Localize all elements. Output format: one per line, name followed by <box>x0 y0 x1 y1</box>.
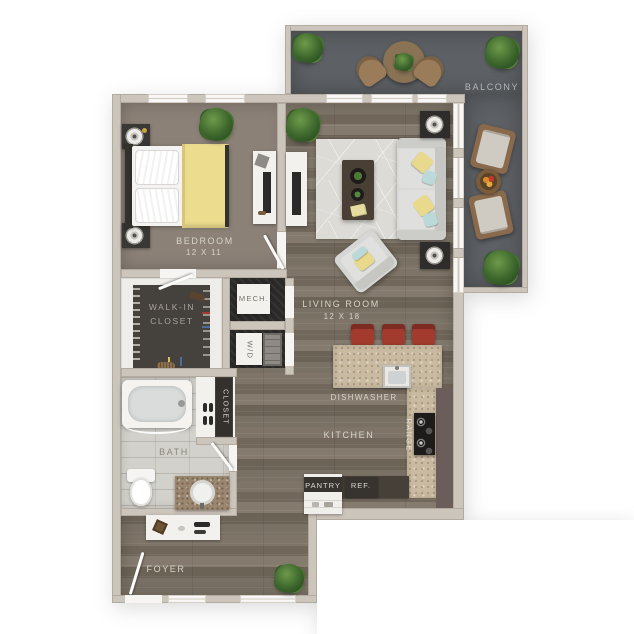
toilet-bowl <box>130 478 152 506</box>
bath-vanity <box>175 476 229 510</box>
living-room-tv <box>292 172 301 215</box>
balcony-wall-bottom <box>458 287 528 293</box>
living-room-plant <box>287 108 320 142</box>
bathtub-faucet-icon <box>178 400 185 407</box>
window-mullion-3 <box>453 248 464 258</box>
shoes-pair-1 <box>203 403 207 412</box>
hall-closet-label: CLOSET <box>222 389 229 425</box>
balcony-label: BALCONY <box>465 82 519 92</box>
sink-basin <box>388 371 406 384</box>
bar-stool-3 <box>412 324 435 345</box>
foyer-label: FOYER <box>146 564 185 574</box>
bedroom-tv <box>263 172 271 213</box>
table-planter-2 <box>351 188 364 201</box>
shower-curtain-arc <box>124 416 190 434</box>
wall-wic-right <box>222 278 230 375</box>
console-decor-dish <box>178 526 185 531</box>
console-decor-tray <box>152 519 168 535</box>
lounge-cushion <box>474 195 508 234</box>
sofa-arm-bottom <box>397 230 446 240</box>
console-decor-glasses-icon <box>194 522 210 527</box>
balcony-plant-top-left <box>293 33 323 63</box>
coffee-table <box>342 160 374 220</box>
sofa <box>397 138 446 240</box>
clothes-tick-blue2 <box>180 357 182 366</box>
nightstand-trinket <box>142 128 147 133</box>
table-planter-1 <box>350 168 366 184</box>
pantry-jar-1 <box>312 502 319 507</box>
refrigerator-label: REF. <box>351 481 371 490</box>
clothes-tick-blue <box>202 326 210 328</box>
wall-closet-bottom <box>196 437 237 445</box>
balcony-plant-bottom <box>484 250 519 285</box>
end-table-lamp-icon <box>425 115 444 134</box>
range-cooktop <box>414 413 435 455</box>
wd-door-opening <box>285 333 294 366</box>
pantry-cabinet: PANTRY <box>304 474 342 514</box>
bed-pillow-bottom <box>135 188 179 223</box>
living-room-window-1 <box>326 94 363 103</box>
wall-bedroom-bottom <box>121 269 287 278</box>
bed-pillow-top <box>135 150 179 185</box>
range-label: RANGE <box>405 418 414 451</box>
pantry-label: PANTRY <box>305 481 341 490</box>
bed <box>125 144 229 228</box>
window-mullion-2 <box>453 198 464 208</box>
walk-in-closet-label-line2: CLOSET <box>150 316 194 326</box>
foyer-window-2 <box>240 595 296 603</box>
wall-left <box>112 94 121 603</box>
bedroom-window-1 <box>148 94 188 103</box>
lounge-cushion <box>475 129 510 169</box>
nightstand-lamp-icon <box>125 226 144 245</box>
console-decor-keys-icon <box>194 530 206 534</box>
bed-foot-rail <box>225 145 229 227</box>
living-room-label: LIVING ROOM <box>302 299 380 309</box>
front-door-opening <box>125 595 162 603</box>
balcony-side-table <box>476 169 501 194</box>
balcony-plant-top-right <box>486 36 519 69</box>
window-mullion-1 <box>453 148 464 158</box>
wd-label: W/D <box>246 341 255 359</box>
apartment-floor-plan: BALCONY WALK-IN CLOSET MECH. W/D CLOSET <box>0 0 634 634</box>
balcony-wall-right <box>522 25 528 293</box>
living-room-console <box>286 152 307 226</box>
kitchen-sink <box>383 365 411 388</box>
kitchen-wall-cabinets <box>436 388 453 508</box>
exterior-mask <box>317 520 634 634</box>
hanging-clothes-right <box>203 290 210 360</box>
bed-blanket <box>182 144 229 228</box>
bedroom-dresser <box>253 151 276 224</box>
wall-mech-wd-divider <box>230 321 285 330</box>
living-room-dims: 12 X 18 <box>324 312 361 321</box>
balcony-wall-top <box>285 25 528 31</box>
fruit-bowl <box>480 173 497 190</box>
bedroom-plant <box>200 108 233 141</box>
dresser-decor-box <box>254 153 269 168</box>
foyer-window-1 <box>168 595 206 603</box>
kitchen-label: KITCHEN <box>324 430 375 440</box>
table-plant <box>395 53 413 71</box>
clothes-tick-red <box>202 312 210 314</box>
table-book <box>350 204 366 217</box>
floor-plan-image: BALCONY WALK-IN CLOSET MECH. W/D CLOSET <box>0 0 634 634</box>
hanging-clothes-left <box>133 288 140 364</box>
dresser-decor-small <box>258 211 266 215</box>
wall-foyer-step <box>308 508 317 603</box>
bar-stool-2 <box>382 324 405 345</box>
bedroom-dims: 12 X 11 <box>186 248 222 257</box>
bar-stool-1 <box>351 324 374 345</box>
vanity-sink <box>190 480 215 505</box>
vanity-faucet-icon <box>200 503 204 509</box>
foyer-plant <box>275 564 304 593</box>
living-room-window-2 <box>371 94 413 103</box>
mech-door-opening <box>285 286 294 318</box>
dryer-unit <box>263 333 282 366</box>
shoes-pair-2 <box>203 416 207 425</box>
sink-faucet-icon <box>395 366 399 370</box>
end-table-top <box>420 111 450 138</box>
pantry-jar-2 <box>324 502 333 507</box>
wall-bath-top <box>121 368 237 377</box>
bedroom-label: BEDROOM <box>176 236 234 246</box>
end-table-bottom <box>420 242 450 269</box>
dishwasher-label: DISHWASHER <box>331 393 398 402</box>
toilet <box>127 469 155 509</box>
bath-label: BATH <box>159 447 189 457</box>
end-table-lamp-icon <box>425 246 444 265</box>
wall-bedroom-right <box>277 103 286 232</box>
balcony-wall-left <box>285 25 291 94</box>
balcony-door-opening <box>417 94 447 103</box>
walk-in-closet-label-line1: WALK-IN <box>149 302 195 312</box>
mech-label: MECH. <box>239 294 269 303</box>
bedroom-window-2 <box>205 94 245 103</box>
foyer-console-table <box>146 515 220 540</box>
